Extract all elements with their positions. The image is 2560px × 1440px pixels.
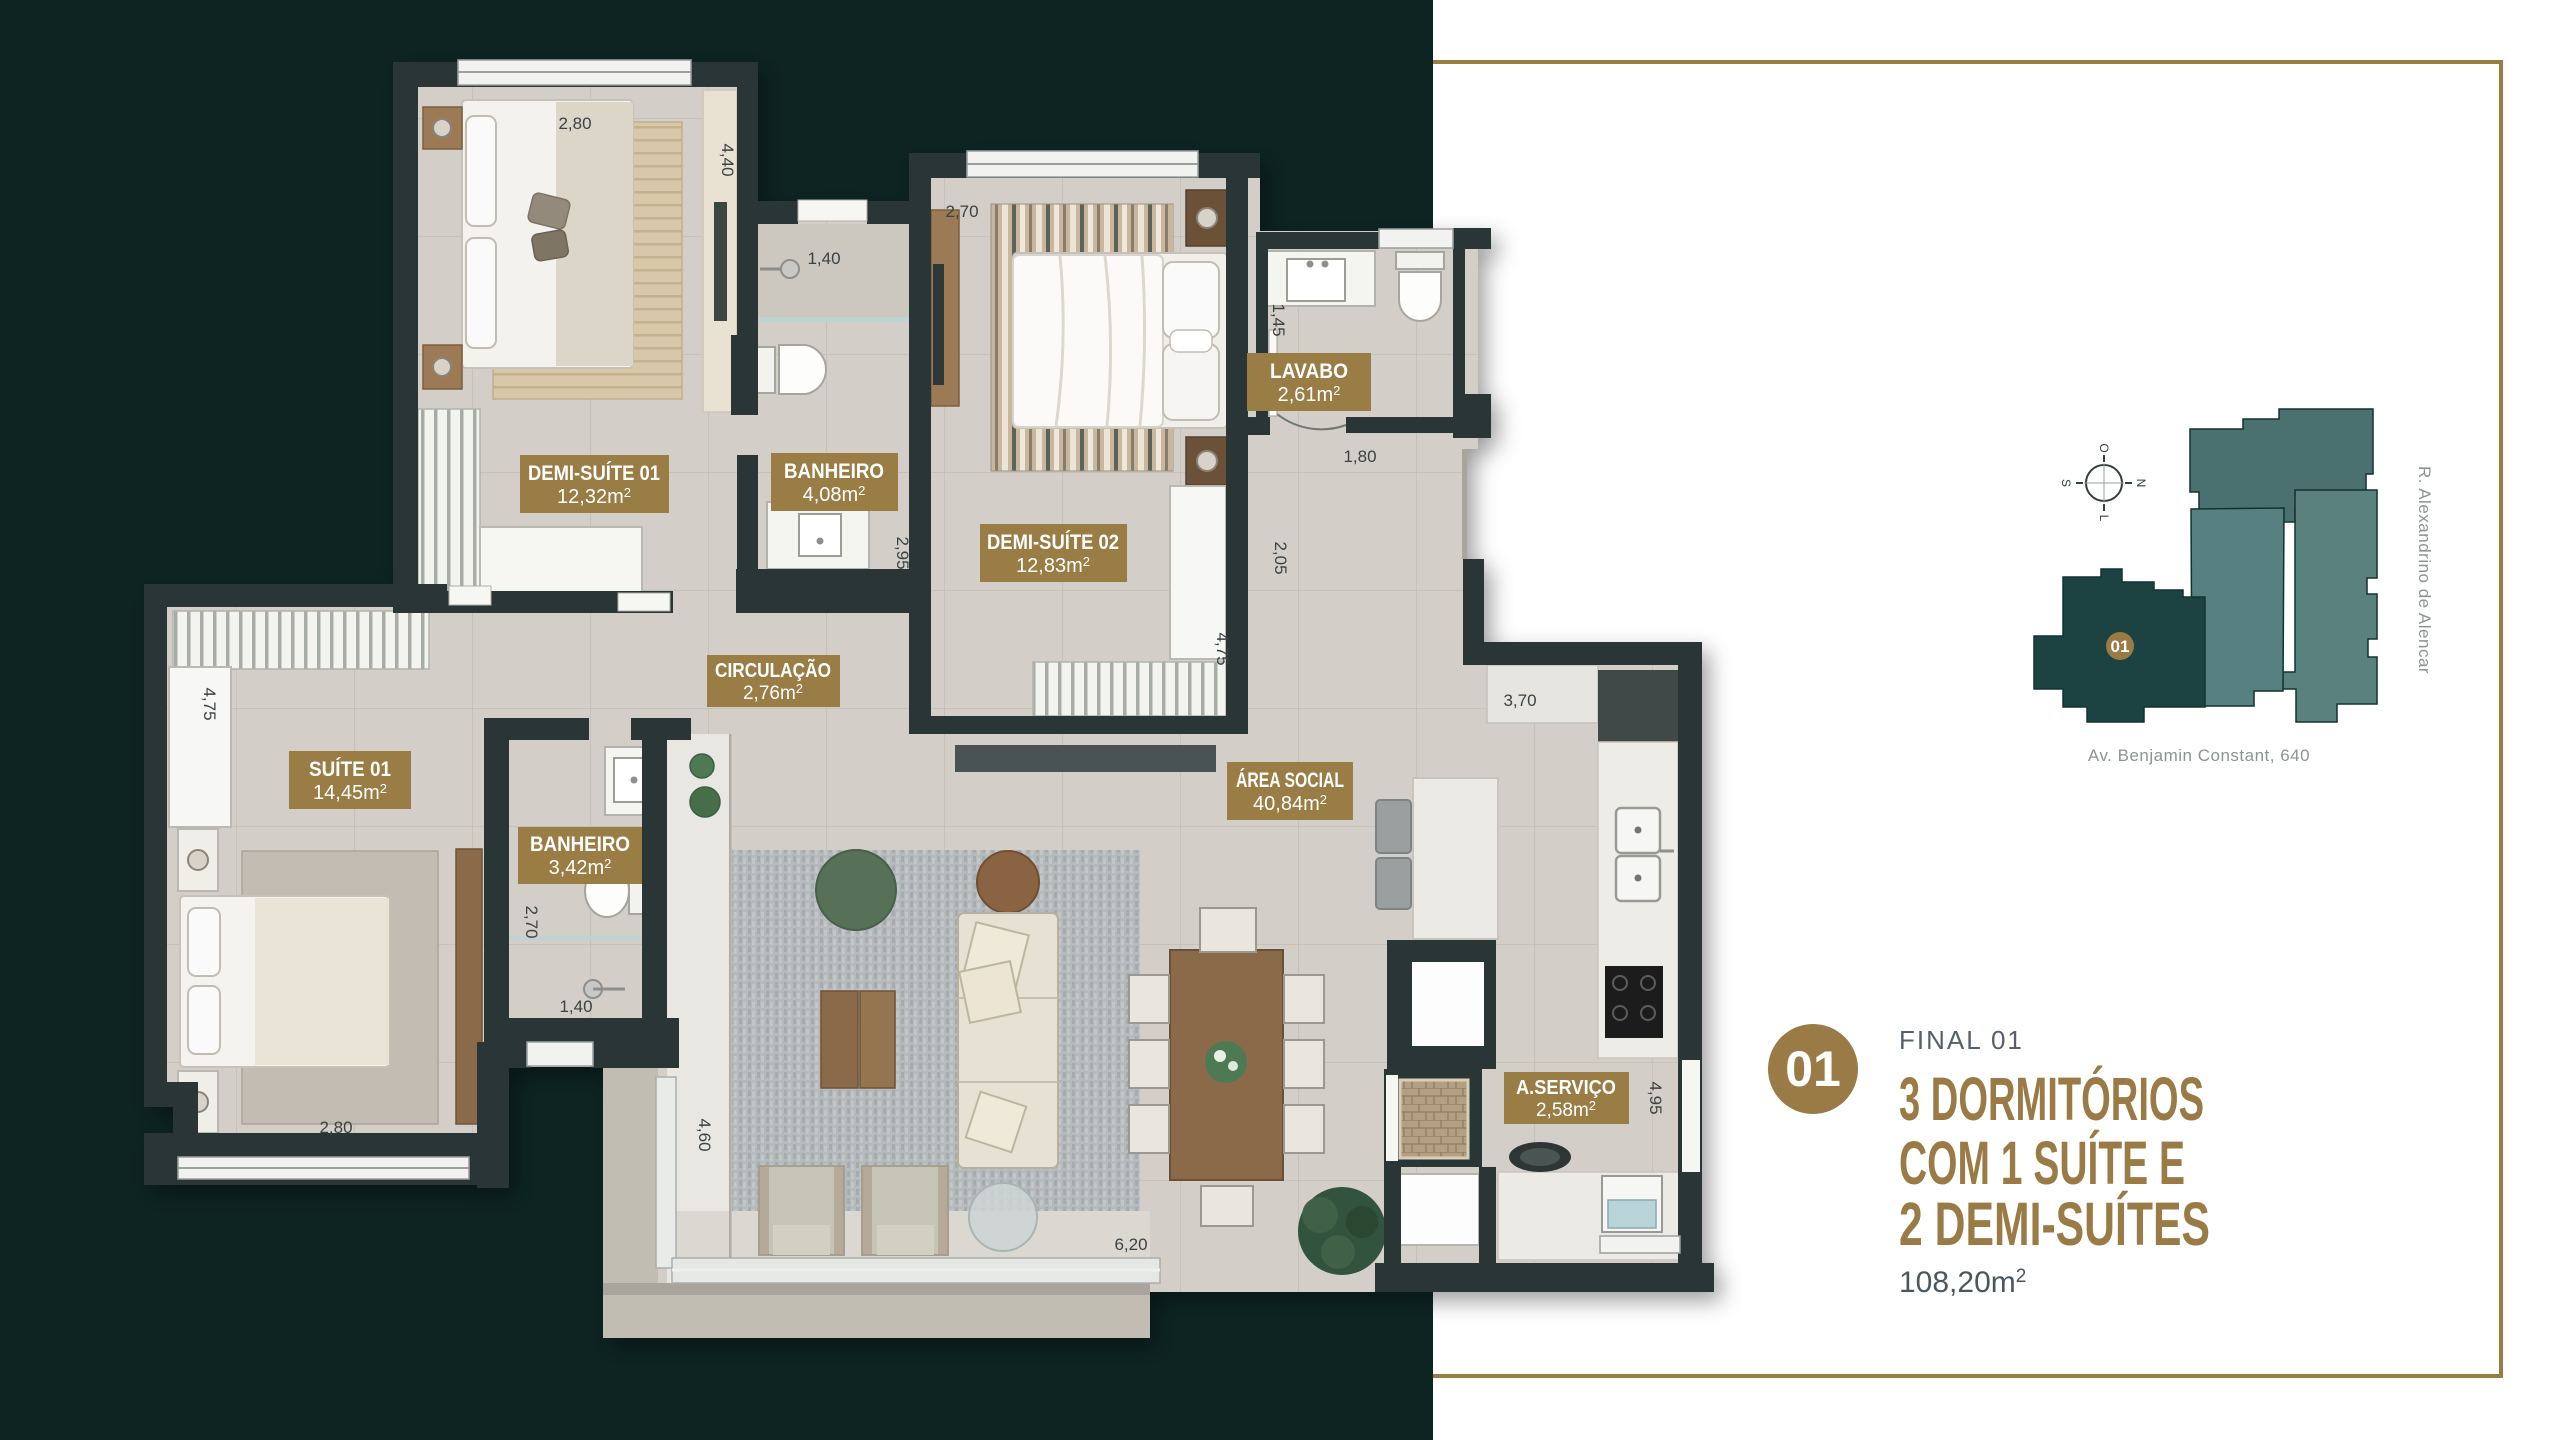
svg-text:12,83m2: 12,83m2: [1016, 554, 1090, 577]
svg-text:2,80: 2,80: [558, 114, 591, 133]
svg-text:A.SERVIÇO: A.SERVIÇO: [1516, 1077, 1616, 1099]
svg-text:R. Alexandrino de Alencar: R. Alexandrino de Alencar: [2415, 466, 2434, 674]
svg-text:108,20m2: 108,20m2: [1899, 1266, 2026, 1299]
svg-text:4,08m2: 4,08m2: [803, 483, 866, 506]
svg-text:2,58m2: 2,58m2: [1536, 1098, 1596, 1121]
svg-text:2,80: 2,80: [319, 1118, 352, 1137]
svg-text:1,40: 1,40: [559, 997, 592, 1016]
svg-text:2 DEMI-SUÍTES: 2 DEMI-SUÍTES: [1899, 1190, 2210, 1258]
svg-text:4,95: 4,95: [1646, 1081, 1665, 1114]
svg-text:DEMI-SUÍTE 01: DEMI-SUÍTE 01: [528, 462, 660, 485]
svg-text:Av. Benjamin Constant, 640: Av. Benjamin Constant, 640: [2088, 746, 2310, 765]
svg-text:FINAL 01: FINAL 01: [1899, 1025, 2024, 1055]
svg-text:O: O: [2097, 443, 2111, 452]
svg-text:4,40: 4,40: [718, 143, 737, 176]
svg-text:01: 01: [2111, 637, 2130, 656]
svg-text:LAVABO: LAVABO: [1270, 360, 1348, 383]
svg-text:12,32m2: 12,32m2: [557, 485, 631, 508]
svg-text:ÁREA SOCIAL: ÁREA SOCIAL: [1236, 769, 1344, 792]
svg-text:N: N: [2134, 479, 2148, 488]
svg-text:L: L: [2097, 515, 2111, 522]
svg-text:01: 01: [1785, 1041, 1841, 1097]
svg-text:1,40: 1,40: [807, 249, 840, 268]
svg-text:2,61m2: 2,61m2: [1278, 383, 1341, 406]
svg-text:2,95: 2,95: [893, 536, 912, 569]
svg-text:2,76m2: 2,76m2: [743, 681, 803, 704]
svg-text:SUÍTE 01: SUÍTE 01: [309, 758, 391, 781]
svg-text:4,60: 4,60: [695, 1118, 714, 1151]
svg-text:DEMI-SUÍTE 02: DEMI-SUÍTE 02: [987, 531, 1119, 554]
svg-text:BANHEIRO: BANHEIRO: [530, 833, 630, 856]
svg-text:BANHEIRO: BANHEIRO: [784, 460, 884, 483]
svg-text:COM 1 SUÍTE E: COM 1 SUÍTE E: [1899, 1129, 2185, 1197]
svg-text:4,75: 4,75: [1213, 632, 1232, 665]
svg-text:3,42m2: 3,42m2: [549, 856, 612, 879]
svg-text:40,84m2: 40,84m2: [1253, 792, 1327, 815]
svg-text:2,70: 2,70: [522, 905, 541, 938]
svg-text:3 DORMITÓRIOS: 3 DORMITÓRIOS: [1899, 1065, 2204, 1133]
svg-text:2,05: 2,05: [1271, 541, 1290, 574]
svg-text:3,70: 3,70: [1503, 691, 1536, 710]
svg-text:S: S: [2059, 479, 2073, 487]
svg-text:2,70: 2,70: [945, 202, 978, 221]
svg-text:6,20: 6,20: [1114, 1235, 1147, 1254]
svg-text:CIRCULAÇÃO: CIRCULAÇÃO: [715, 659, 831, 682]
svg-text:1,45: 1,45: [1269, 303, 1288, 336]
svg-text:4,75: 4,75: [200, 687, 219, 720]
svg-text:14,45m2: 14,45m2: [313, 781, 387, 804]
svg-text:1,80: 1,80: [1343, 447, 1376, 466]
